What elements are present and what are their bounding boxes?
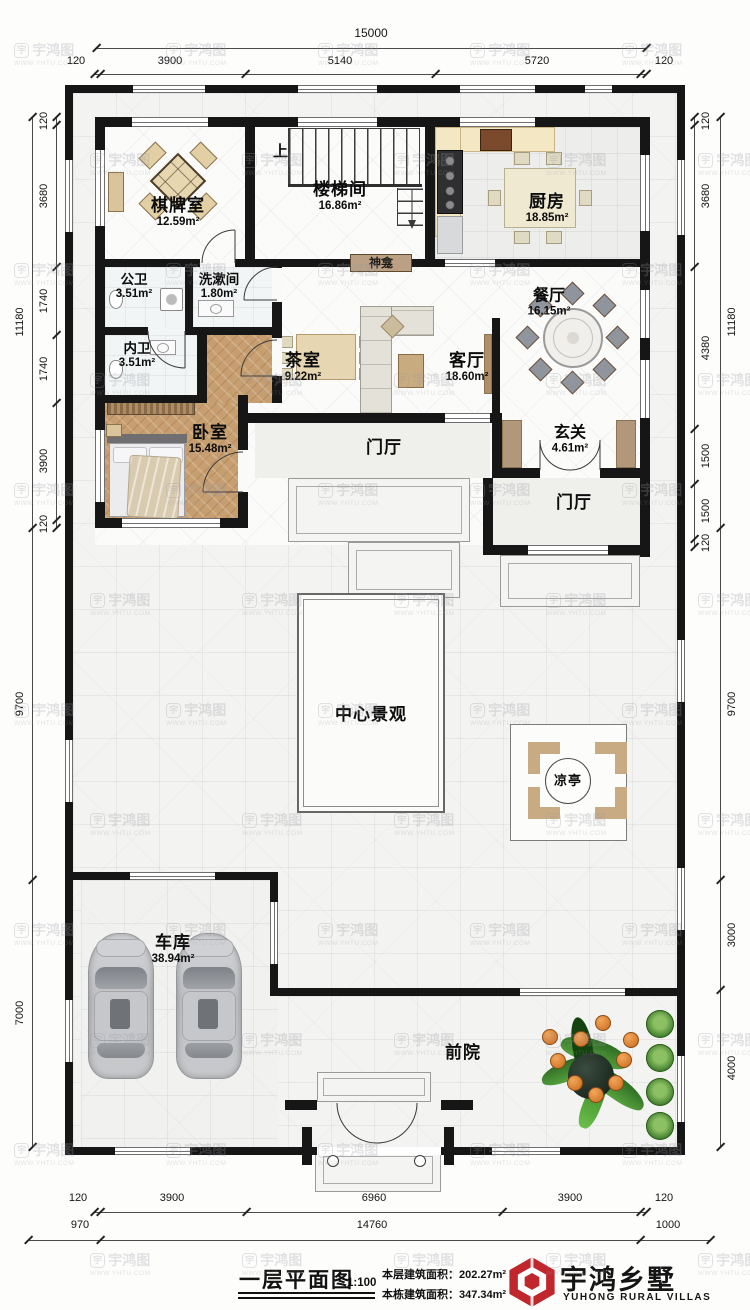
dim-label: 3680 xyxy=(700,184,712,208)
wall xyxy=(65,93,73,1147)
drawing-element: 上 xyxy=(273,143,289,161)
chair xyxy=(488,190,501,206)
drawing-element: 餐厅 xyxy=(528,287,571,306)
dim-label: 1500 xyxy=(700,499,712,523)
drawing-element xyxy=(110,999,130,1029)
washing-machine xyxy=(160,288,183,311)
window xyxy=(122,518,220,528)
drawing-element xyxy=(296,486,462,534)
dim-label: 6960 xyxy=(362,1192,386,1204)
wall xyxy=(492,318,500,415)
drawing-element: 宇 xyxy=(698,1033,713,1048)
range-hood xyxy=(480,129,512,151)
drawing-element: 3.51m² xyxy=(116,288,152,302)
drawing-element: 宇宇鸿图 xyxy=(698,590,750,610)
dim-label: 120 xyxy=(38,515,50,533)
drawing-element: 宇宇鸿图 xyxy=(698,370,750,390)
dim-label: 120 xyxy=(38,112,50,130)
wall xyxy=(502,468,540,478)
cabinet xyxy=(108,172,124,212)
floor-area: 本层建筑面积：202.27m² xyxy=(382,1266,506,1282)
window xyxy=(133,85,205,93)
watermark: 宇宇鸿图WWW.YHTU.COM xyxy=(622,40,683,67)
drawing-element: 3.51m² xyxy=(119,357,155,371)
dim-label: 120 xyxy=(700,534,712,552)
dim-tick xyxy=(716,1142,725,1151)
drawing-element xyxy=(183,967,235,989)
bush xyxy=(646,1112,674,1140)
room-label-foyer1: 门厅 xyxy=(366,438,402,458)
drawing-element: 宇鸿图 xyxy=(716,590,750,610)
drawing-element: 宇宇鸿图 xyxy=(14,40,75,60)
drawing-element: 玄关 xyxy=(552,424,588,443)
drawing-element: 宇 xyxy=(14,43,29,58)
window xyxy=(95,150,105,226)
wall xyxy=(285,1100,317,1110)
fruit xyxy=(588,1087,604,1103)
door-opening xyxy=(317,1147,441,1155)
wall xyxy=(625,988,677,996)
bush xyxy=(646,1044,674,1072)
dim-label: 120 xyxy=(655,55,673,67)
drawing-element: 347.34m² xyxy=(459,1289,506,1301)
fruit xyxy=(542,1029,558,1045)
dim-label: 4000 xyxy=(726,1056,738,1080)
dim-tick xyxy=(642,43,651,52)
dim-label: 3900 xyxy=(160,1192,184,1204)
window xyxy=(677,640,685,702)
wall xyxy=(95,395,207,403)
drawing-element: 1.80m² xyxy=(199,288,240,302)
chair xyxy=(514,231,530,244)
dim-tick xyxy=(706,1235,715,1244)
wall xyxy=(492,415,502,478)
watermark: 宇宇鸿图WWW.YHTU.COM xyxy=(698,150,750,177)
drawing-element xyxy=(356,550,452,590)
watermark: 宇宇鸿图WWW.YHTU.COM xyxy=(698,370,750,397)
drawing-element: 卧室 xyxy=(189,423,232,443)
watermark: 宇宇鸿图WWW.YHTU.COM xyxy=(470,40,531,67)
drawing-element: WWW.YHTU.COM xyxy=(698,170,750,177)
room-label-bedroom: 卧室15.48m² xyxy=(189,423,232,457)
window xyxy=(460,117,535,127)
drawing-element: 宇 xyxy=(14,483,29,498)
drawing-element: 18.60m² xyxy=(446,371,489,385)
drawing-element xyxy=(238,1297,375,1299)
drawing-element: 宇宇鸿图 xyxy=(90,1250,151,1270)
bedroom-wood-floor xyxy=(207,335,272,403)
dim-label: 970 xyxy=(71,1219,89,1231)
drawing-element: 宇 xyxy=(698,593,713,608)
dim-label: 3900 xyxy=(38,449,50,473)
window xyxy=(677,160,685,235)
drawing-element: 宇鸿图 xyxy=(716,1250,750,1270)
dim-tick xyxy=(690,542,699,551)
dim-line xyxy=(32,117,33,1147)
room-label-stairhall: 楼梯间16.86m² xyxy=(313,180,367,214)
gate-column xyxy=(327,1155,339,1167)
car xyxy=(88,933,154,1079)
steps xyxy=(500,555,640,607)
fruit xyxy=(616,1052,632,1068)
drawing-element xyxy=(303,599,439,807)
dim-tick xyxy=(28,1142,37,1151)
window xyxy=(65,1000,73,1062)
window xyxy=(640,155,650,231)
watermark: 宇宇鸿图WWW.YHTU.COM xyxy=(698,590,750,617)
bush xyxy=(646,1078,674,1106)
drawing-element xyxy=(323,1078,425,1096)
side-table xyxy=(398,354,424,388)
fruit xyxy=(573,1031,589,1047)
drawing-element: 宇宇鸿图 xyxy=(698,150,750,170)
window xyxy=(520,988,625,996)
shrine-niche: 神龛 xyxy=(350,254,412,272)
drawing-element: 15.48m² xyxy=(189,443,232,457)
wall xyxy=(302,1127,312,1165)
stairs-up-label: 上 xyxy=(273,143,289,161)
drawing-element xyxy=(198,999,218,1029)
room-label-chess: 棋牌室12.59m² xyxy=(151,196,205,230)
drawing-element: 宇 xyxy=(470,43,485,58)
door-opening xyxy=(238,450,248,492)
dim-label: 11180 xyxy=(726,308,738,337)
drawing-element: 16.86m² xyxy=(313,200,367,214)
wall xyxy=(441,1100,473,1110)
drawing-element: 宇 xyxy=(698,153,713,168)
porch-pillar xyxy=(502,420,522,468)
drawing-element: 宇 xyxy=(90,1253,105,1268)
drawing-element: 公卫 xyxy=(116,272,152,288)
dim-tick xyxy=(52,523,61,532)
fruit xyxy=(595,1015,611,1031)
nightstand xyxy=(106,424,122,437)
dim-label: 3000 xyxy=(726,923,738,947)
drawing-element: WWW.YHTU.COM xyxy=(622,1160,683,1167)
drawing-element: 门厅 xyxy=(556,493,592,513)
window xyxy=(585,85,612,93)
drawing-element: 202.27m² xyxy=(459,1269,506,1281)
room-label-dining: 餐厅16.15m² xyxy=(528,287,571,320)
drawing-element: WWW.YHTU.COM xyxy=(166,1160,227,1167)
pavilion-corner xyxy=(615,787,627,819)
room-label-tea: 茶室9.22m² xyxy=(285,351,321,385)
bush xyxy=(646,1010,674,1038)
window xyxy=(65,740,73,802)
dim-label: 1500 xyxy=(700,444,712,468)
stair-treads xyxy=(288,128,420,185)
drawing-element: 宇鸿图 xyxy=(716,150,750,170)
drawing-title: 一层平面图 xyxy=(239,1264,354,1294)
fruit xyxy=(623,1032,639,1048)
watermark: 宇宇鸿图WWW.YHTU.COM xyxy=(14,40,75,67)
wall xyxy=(640,478,650,555)
dim-label: 9700 xyxy=(726,692,738,716)
drawing-element: 棋牌室 xyxy=(151,196,205,216)
room-label-frontyard: 前院 xyxy=(445,1043,481,1063)
drawing-element: 宇鸿图 xyxy=(716,810,750,830)
chair xyxy=(546,152,562,165)
drawing-element: 凉亭 xyxy=(554,773,582,789)
room-label-foyer2: 门厅 xyxy=(556,493,592,513)
pavilion-corner xyxy=(615,742,627,774)
drawing-element: 宇宇鸿图 xyxy=(698,810,750,830)
drawing-element: 宇 xyxy=(698,1253,713,1268)
wall xyxy=(245,127,255,259)
drawing-element: WWW.YHTU.COM xyxy=(14,1160,75,1167)
window xyxy=(677,868,685,930)
drawing-element: 客厅 xyxy=(446,351,489,371)
steps xyxy=(288,478,470,542)
pavilion-corner xyxy=(528,742,540,774)
drawing-element xyxy=(97,1043,145,1058)
drawing-element: 宇 xyxy=(698,373,713,388)
wall xyxy=(677,93,685,1147)
dim-label: 4380 xyxy=(700,336,712,360)
drawing-element xyxy=(198,300,234,317)
dim-label: 1000 xyxy=(656,1219,680,1231)
drawing-element: 4.61m² xyxy=(552,443,588,457)
drawing-element xyxy=(508,563,632,599)
dim-line xyxy=(94,1212,646,1213)
window xyxy=(130,872,215,880)
drawing-element: 宇宇鸿图 xyxy=(698,1030,750,1050)
brand-logo-icon xyxy=(506,1256,558,1308)
window xyxy=(115,1147,190,1155)
drawing-scale: 1:100 xyxy=(347,1277,376,1289)
window xyxy=(640,290,650,338)
door-opening xyxy=(148,327,185,335)
wall xyxy=(248,413,445,423)
dim-label: 1740 xyxy=(38,289,50,313)
window xyxy=(640,360,650,418)
drawing-element: 前院 xyxy=(445,1043,481,1063)
wall xyxy=(215,872,278,880)
wall xyxy=(73,872,130,880)
room-label-washroom: 洗漱间1.80m² xyxy=(199,272,240,302)
drawing-element xyxy=(531,1296,534,1307)
fruit xyxy=(550,1053,566,1069)
building-area: 本栋建筑面积：347.34m² xyxy=(382,1286,506,1302)
steps xyxy=(317,1072,431,1102)
drawing-element: WWW.YHTU.COM xyxy=(90,1270,151,1277)
window xyxy=(298,85,377,93)
drawing-element: 宇鸿图 xyxy=(108,1250,150,1270)
drawing-element: WWW.YHTU.COM xyxy=(698,1270,750,1277)
drawing-element: WWW.YHTU.COM xyxy=(698,390,750,397)
drawing-element: WWW.YHTU.COM xyxy=(698,1050,750,1057)
drawing-element: 宇 xyxy=(14,923,29,938)
door-opening xyxy=(272,338,282,376)
drawing-element: 本层建筑面积： xyxy=(382,1269,459,1281)
drawing-element: WWW.YHTU.COM xyxy=(14,60,75,67)
drawing-element xyxy=(95,967,147,989)
wall xyxy=(185,267,193,327)
window xyxy=(677,1056,685,1122)
flower-arrangement xyxy=(540,1015,645,1130)
room-label-living: 客厅18.60m² xyxy=(446,351,489,385)
drawing-element: 12.59m² xyxy=(151,216,205,230)
watermark: 宇宇鸿图WWW.YHTU.COM xyxy=(698,810,750,837)
watermark: 宇宇鸿图WWW.YHTU.COM xyxy=(698,1250,750,1277)
room-label-entry: 玄关4.61m² xyxy=(552,424,588,457)
wall xyxy=(425,127,435,259)
drawing-element: 楼梯间 xyxy=(313,180,367,200)
drawing-element: 宇宇鸿图 xyxy=(470,40,531,60)
wall xyxy=(608,545,650,555)
dim-line xyxy=(720,117,721,1147)
dim-label: 9700 xyxy=(14,692,26,716)
drawing-element: 9.22m² xyxy=(285,371,321,385)
room-label-pavilion: 凉亭 xyxy=(554,773,582,789)
watermark: 宇宇鸿图WWW.YHTU.COM xyxy=(698,1030,750,1057)
drawing-element: 宇鸿图 xyxy=(184,40,226,60)
window xyxy=(445,413,490,423)
window xyxy=(65,160,73,232)
room-label-landscape: 中心景观 xyxy=(335,705,407,725)
drawing-element: 车库 xyxy=(152,933,195,953)
drawing-element xyxy=(531,1257,534,1268)
wall xyxy=(197,335,207,403)
drawing-element: WWW.YHTU.COM xyxy=(698,830,750,837)
chair xyxy=(546,231,562,244)
drawing-element xyxy=(96,939,146,957)
dim-label: 120 xyxy=(655,1192,673,1204)
drawing-element: 38.94m² xyxy=(152,953,195,967)
fruit xyxy=(608,1075,624,1091)
room-label-public-bath: 公卫3.51m² xyxy=(116,272,152,302)
porch-pillar xyxy=(616,420,636,468)
chair xyxy=(514,152,530,165)
dim-label: 120 xyxy=(700,112,712,130)
dim-line xyxy=(56,117,57,528)
dim-label: 5720 xyxy=(525,55,549,67)
dim-line xyxy=(96,48,646,49)
door-opening xyxy=(272,268,282,302)
window xyxy=(445,259,495,267)
window xyxy=(95,430,105,502)
window xyxy=(298,117,377,127)
watermark: 宇宇鸿图WWW.YHTU.COM xyxy=(90,1250,151,1277)
kitchen-sink xyxy=(437,216,463,254)
dim-label: 5140 xyxy=(328,55,352,67)
dim-label: 11180 xyxy=(14,308,26,337)
window xyxy=(270,902,278,964)
wall xyxy=(95,327,282,335)
pavilion-corner xyxy=(528,807,560,819)
drawing-element: WWW.YHTU.COM xyxy=(470,1160,531,1167)
drawing-element: 茶室 xyxy=(285,351,321,371)
dim-label: 3680 xyxy=(38,184,50,208)
drawing-element: 宇鸿图 xyxy=(716,1030,750,1050)
door-opening xyxy=(200,259,235,267)
dim-label: 3900 xyxy=(158,55,182,67)
wall xyxy=(483,545,528,555)
wall xyxy=(483,478,493,555)
drawing-element: 洗漱间 xyxy=(199,272,240,288)
drawing-element: WWW.YHTU.COM xyxy=(622,60,683,67)
wall xyxy=(600,468,640,478)
room-label-kitchen: 厨房18.85m² xyxy=(526,192,569,226)
dim-label: 120 xyxy=(67,55,85,67)
steps xyxy=(348,542,460,598)
fruit xyxy=(567,1075,583,1091)
drawing-element: 宇 xyxy=(698,813,713,828)
dim-label: 3900 xyxy=(558,1192,582,1204)
drawing-element: 18.85m² xyxy=(526,212,569,226)
dim-line xyxy=(94,74,646,75)
wall xyxy=(278,988,520,996)
drawing-element: 厨房 xyxy=(526,192,569,212)
drawing-element: 本栋建筑面积： xyxy=(382,1289,459,1301)
drawing-element xyxy=(185,1043,233,1058)
window xyxy=(492,1147,560,1155)
drawing-element: 16.15m² xyxy=(528,306,571,320)
drawing-element xyxy=(567,332,579,344)
dim-total-top: 15000 xyxy=(354,26,387,40)
drawing-element: 宇鸿图 xyxy=(716,370,750,390)
dim-line xyxy=(28,1240,710,1241)
drawing-element: 宇 xyxy=(622,43,637,58)
drawing-element: WWW.YHTU.COM xyxy=(470,60,531,67)
stove xyxy=(437,150,463,214)
wall xyxy=(444,1127,454,1165)
floor-plan-sheet: 15000 120 3900 5140 5720 120 120 3900 69… xyxy=(0,0,750,1310)
drawing-element: 宇宇鸿图 xyxy=(698,1250,750,1270)
drawing-element: 宇 xyxy=(14,263,29,278)
room-label-ensuite-bath: 内卫3.51m² xyxy=(119,341,155,371)
dim-label: 7000 xyxy=(14,1001,26,1025)
window xyxy=(132,117,208,127)
drawing-element: 内卫 xyxy=(119,341,155,357)
drawing-element: 宇宇鸿图 xyxy=(622,40,683,60)
drawing-element xyxy=(238,1292,375,1294)
chair xyxy=(579,190,592,206)
window xyxy=(460,85,535,93)
drawing-element: WWW.YHTU.COM xyxy=(698,610,750,617)
stair-turn xyxy=(397,188,423,226)
window xyxy=(528,545,608,555)
room-label-garage: 车库38.94m² xyxy=(152,933,195,967)
dim-label: 120 xyxy=(69,1192,87,1204)
blanket xyxy=(126,455,181,520)
gate-column xyxy=(414,1155,426,1167)
drawing-element: 门厅 xyxy=(366,438,402,458)
dim-label: 14760 xyxy=(357,1219,388,1231)
brand-name-en: YUHONG RURAL VILLAS xyxy=(563,1292,711,1303)
dim-label: 1740 xyxy=(38,357,50,381)
drawing-element: 中心景观 xyxy=(335,705,407,725)
